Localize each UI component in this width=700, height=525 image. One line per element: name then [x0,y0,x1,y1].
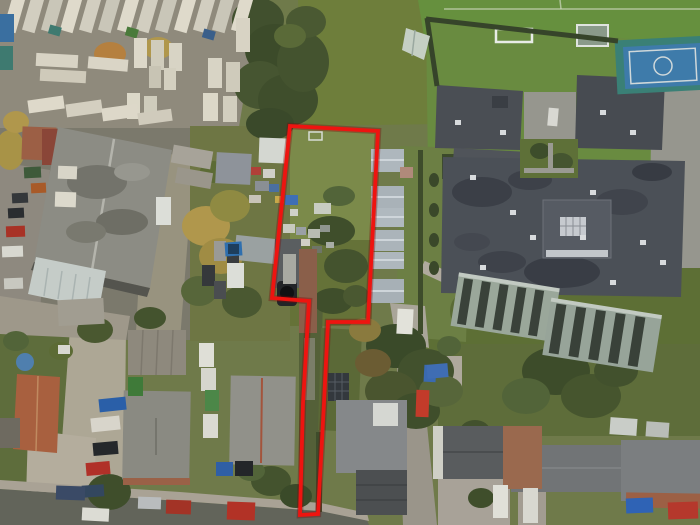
roof-stain [114,163,150,181]
car [202,265,215,286]
garden-item [290,209,298,216]
van [149,66,161,88]
truck-teal [0,46,13,70]
shrub [343,285,369,307]
car-red [86,461,111,476]
house-gable-white [433,426,443,479]
hedge-dot [429,261,439,275]
van [199,343,214,367]
aerial-photo-frame [0,0,700,525]
truck [36,53,79,68]
roof-white-strip [546,250,608,257]
junk-item [249,195,261,203]
garden-item [326,242,334,248]
car [4,278,23,290]
van [227,263,244,288]
roof-stain [524,256,600,288]
bush [3,331,29,351]
roof-stain [632,163,672,181]
garden-item [296,227,306,235]
rooftop-unit [492,96,508,108]
pool-blue [16,353,34,371]
boat-cover [228,244,239,254]
pitch-line [560,0,561,9]
roof-vent [660,260,666,265]
truck [226,62,240,92]
junk-item [255,181,269,191]
car-blue [426,363,448,379]
van [58,166,77,180]
solar-shed [328,373,349,401]
truck [223,96,237,122]
shrub [324,249,368,283]
roof-vent [610,280,616,285]
shed-roof [215,152,252,185]
school-block-northwest [435,85,523,150]
tree [222,286,262,318]
courtyard-path [548,143,553,173]
garden-item [314,203,331,214]
patio [283,254,296,284]
hedge-dot [429,203,439,217]
roof-vent [500,130,506,135]
car [31,183,47,194]
car-white [493,485,508,518]
courtyard-tree [530,143,550,159]
hedge-dot [429,173,439,187]
roof-vent [455,120,461,125]
tree [134,307,166,329]
roof-vent [600,110,606,115]
white-canopy [645,421,669,438]
car-white [547,108,559,127]
van [203,414,218,438]
car-red [668,501,699,519]
house-brick [503,426,542,489]
roof-vent [470,175,476,180]
junk-item-blue [269,184,279,192]
garden-item [301,239,310,246]
roof-stain [454,233,490,251]
car-green [205,390,219,411]
roof-stain [66,221,106,243]
garden-item [320,225,330,232]
car [214,281,226,299]
car [214,241,226,261]
car-red [227,502,256,521]
roof-vent [630,130,636,135]
junk-item-red [251,167,261,175]
truck-red [166,500,191,515]
car-silver [138,497,161,510]
house-dormer [373,403,398,426]
dumpster-green [128,377,143,396]
van-darkblue [56,486,85,501]
van [156,197,171,225]
garden-item-blue [285,195,298,205]
junk-item [263,169,275,178]
truck [134,38,147,68]
roof-vent [480,265,486,270]
truck [203,93,218,121]
car-blue [216,462,233,476]
roof-vent [590,190,596,195]
car [12,193,29,204]
bush [468,488,494,508]
roof-stain [452,177,512,207]
roof-vent [510,210,516,215]
house-ridge-red [261,378,262,463]
car-black [93,441,119,456]
shed-roof [57,298,104,326]
pink-shed [400,167,413,178]
autumn-tree [210,190,250,222]
car [8,208,25,219]
garden-item [58,345,70,354]
house-roof [621,440,700,501]
roof-vent [530,235,536,240]
tree [502,378,550,414]
tree [274,24,306,48]
truck [151,40,164,70]
truck [236,18,250,52]
van [55,192,77,208]
garden-item [308,229,320,238]
house-brick-face [123,478,190,485]
autumn-tree [355,349,391,377]
van [164,68,176,90]
truck [208,58,222,88]
roof-vent [640,240,646,245]
white-canopy [609,417,637,436]
van [201,368,216,391]
car [2,246,23,258]
caravan-roof [259,138,287,164]
truck-blue [0,14,14,42]
hedge [418,150,423,334]
garage-roof-dark [356,470,407,515]
hedge-dot [429,233,439,247]
car-red [6,226,25,238]
tree [437,336,461,356]
car-blue [626,498,654,514]
car [24,167,42,179]
van-red [416,390,430,417]
van [523,488,538,523]
car-white [396,309,413,335]
aerial-canvas [0,0,700,525]
truck [40,69,87,83]
truck [169,43,182,71]
garage-roof [0,418,20,448]
car-black [235,461,253,476]
car-white [82,507,110,521]
tree [280,484,312,508]
roof-vent [580,235,586,240]
garden-item [283,224,295,233]
